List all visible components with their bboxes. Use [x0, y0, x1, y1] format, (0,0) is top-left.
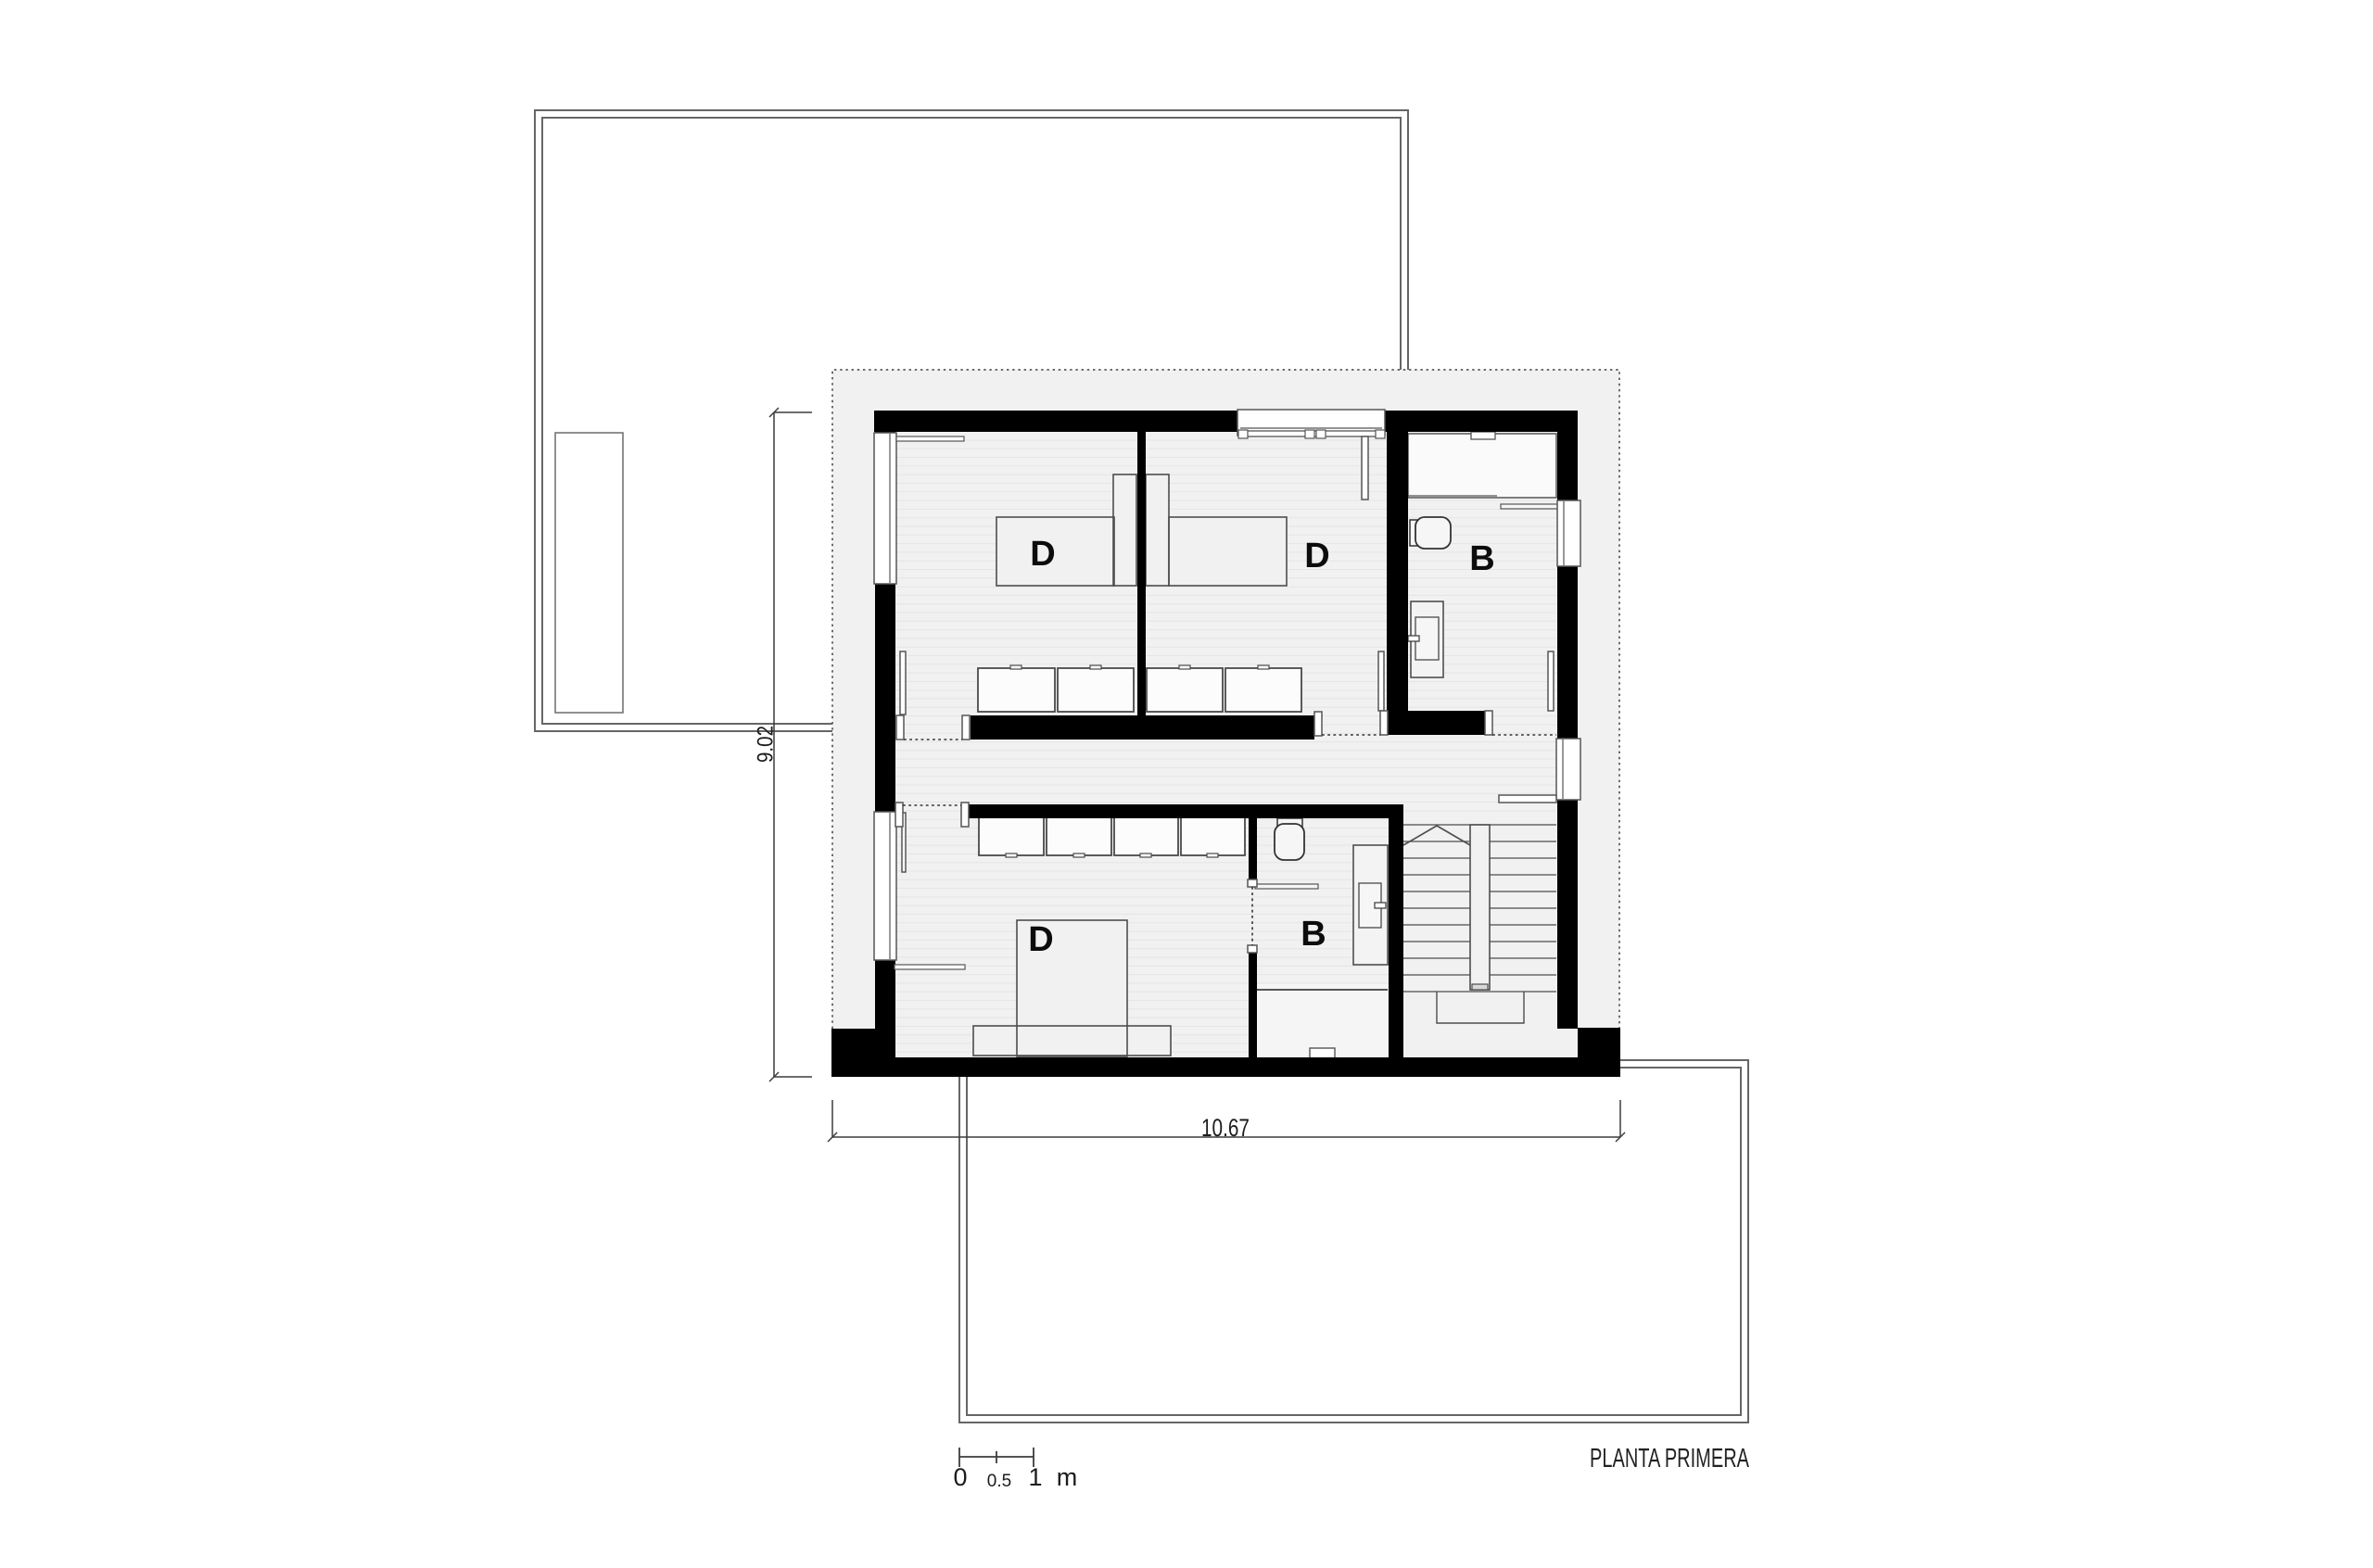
svg-text:1: 1 — [1028, 1463, 1042, 1491]
svg-text:D: D — [1030, 535, 1055, 574]
svg-text:D: D — [1028, 920, 1053, 959]
svg-text:9.02: 9.02 — [753, 726, 778, 763]
svg-text:10.67: 10.67 — [1201, 1114, 1250, 1142]
svg-text:B: B — [1301, 915, 1326, 954]
svg-text:D: D — [1304, 537, 1329, 575]
svg-text:B: B — [1469, 539, 1494, 578]
svg-text:m: m — [1057, 1463, 1078, 1491]
svg-text:0.5: 0.5 — [987, 1472, 1011, 1491]
svg-text:PLANTA PRIMERA: PLANTA PRIMERA — [1590, 1444, 1749, 1473]
svg-text:0: 0 — [953, 1463, 967, 1491]
